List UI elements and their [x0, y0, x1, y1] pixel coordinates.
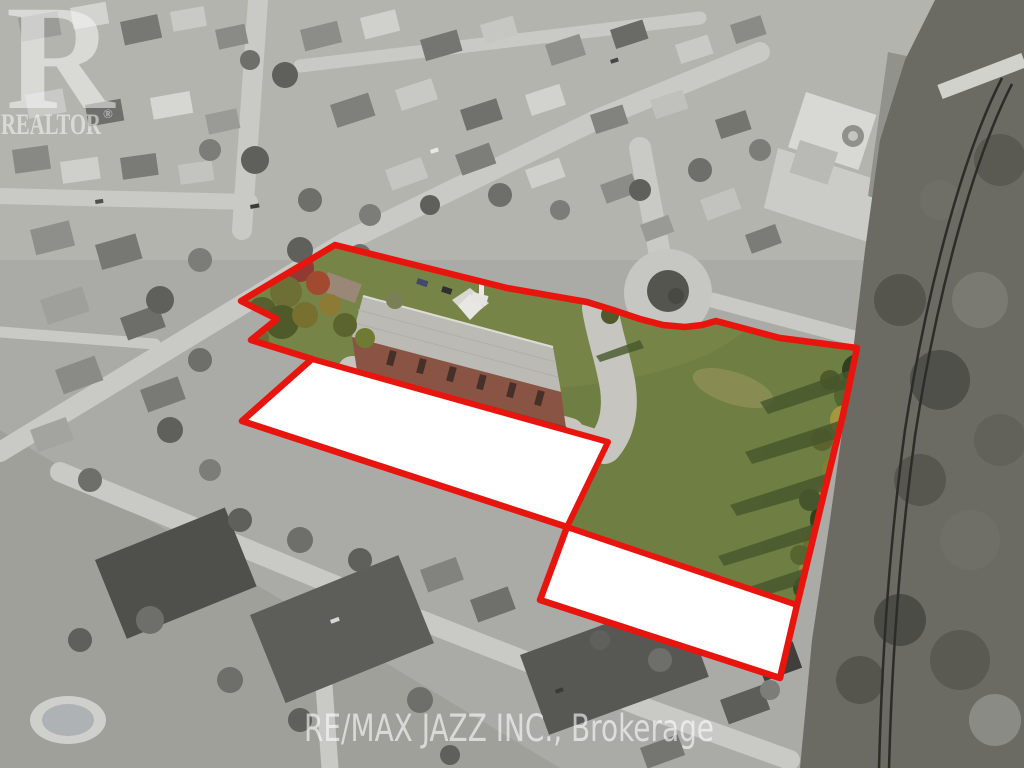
realtor-logo: R REALTOR ® [1, 0, 116, 141]
aerial-photo: R REALTOR ® RE/MAX JAZZ INC., Brokerage [0, 0, 1024, 768]
registered-trademark-icon: ® [103, 106, 113, 121]
aerial-photo-canvas: R REALTOR ® RE/MAX JAZZ INC., Brokerage [0, 0, 1024, 768]
brokerage-watermark: RE/MAX JAZZ INC., Brokerage [304, 707, 714, 750]
realtor-logo-text: REALTOR [1, 108, 101, 141]
